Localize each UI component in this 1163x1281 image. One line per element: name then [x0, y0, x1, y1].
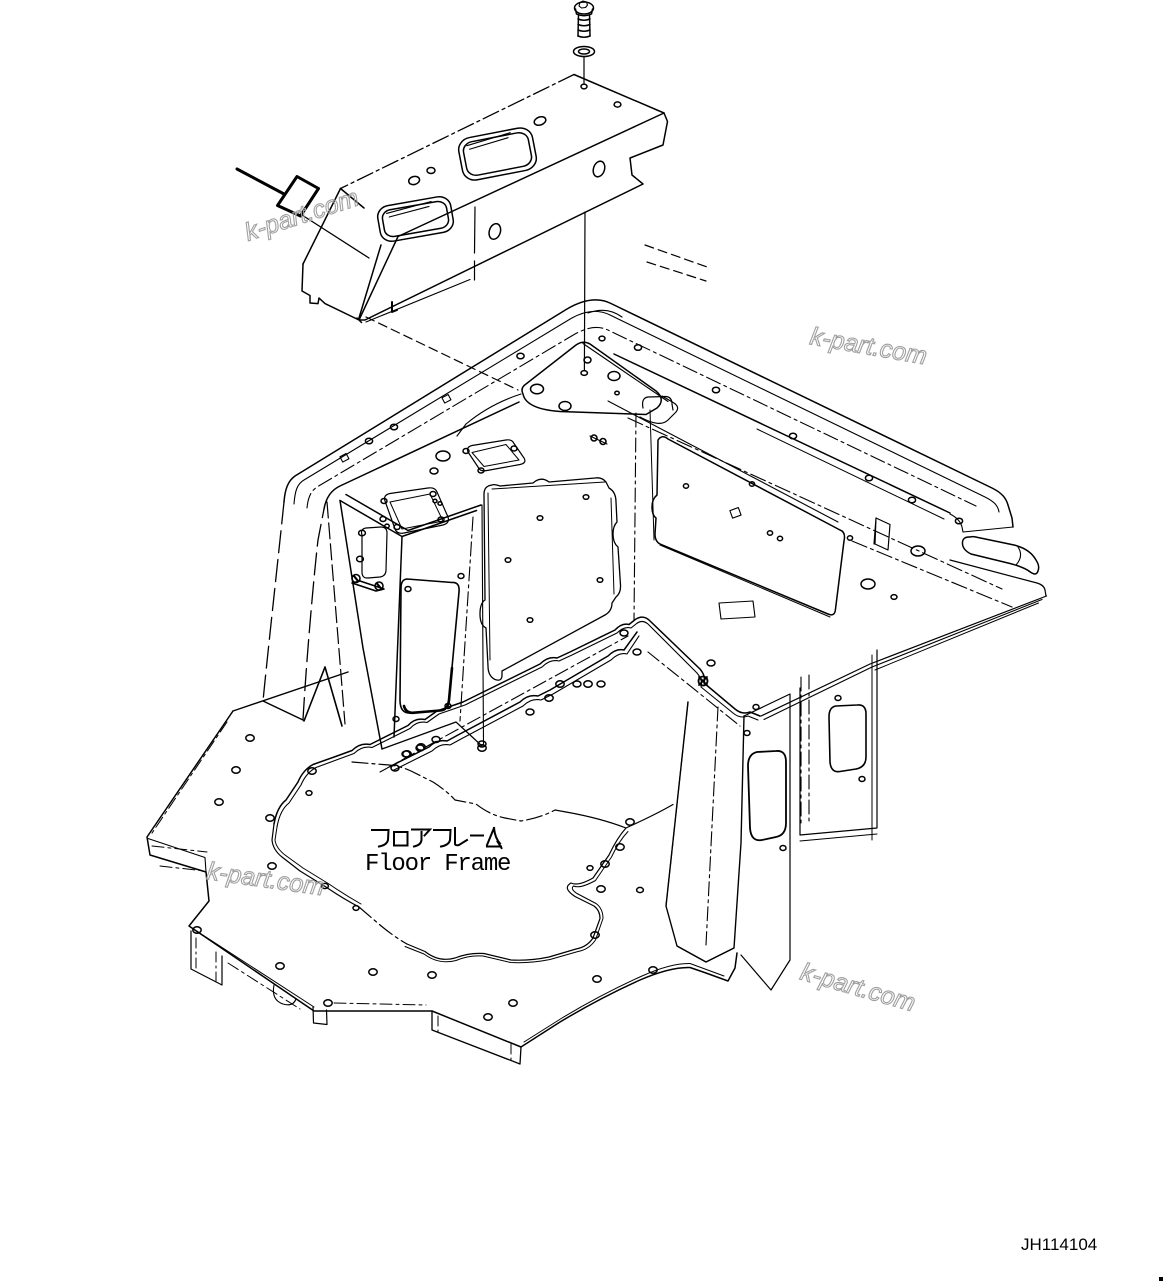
svg-text:k-part.com: k-part.com	[797, 958, 918, 1017]
svg-text:k-part.com: k-part.com	[205, 857, 326, 901]
svg-text:JH114104: JH114104	[1021, 1235, 1097, 1254]
svg-text:k-part.com: k-part.com	[241, 184, 362, 247]
svg-text:k-part.com: k-part.com	[808, 322, 929, 370]
svg-text:Floor Frame: Floor Frame	[365, 851, 510, 878]
